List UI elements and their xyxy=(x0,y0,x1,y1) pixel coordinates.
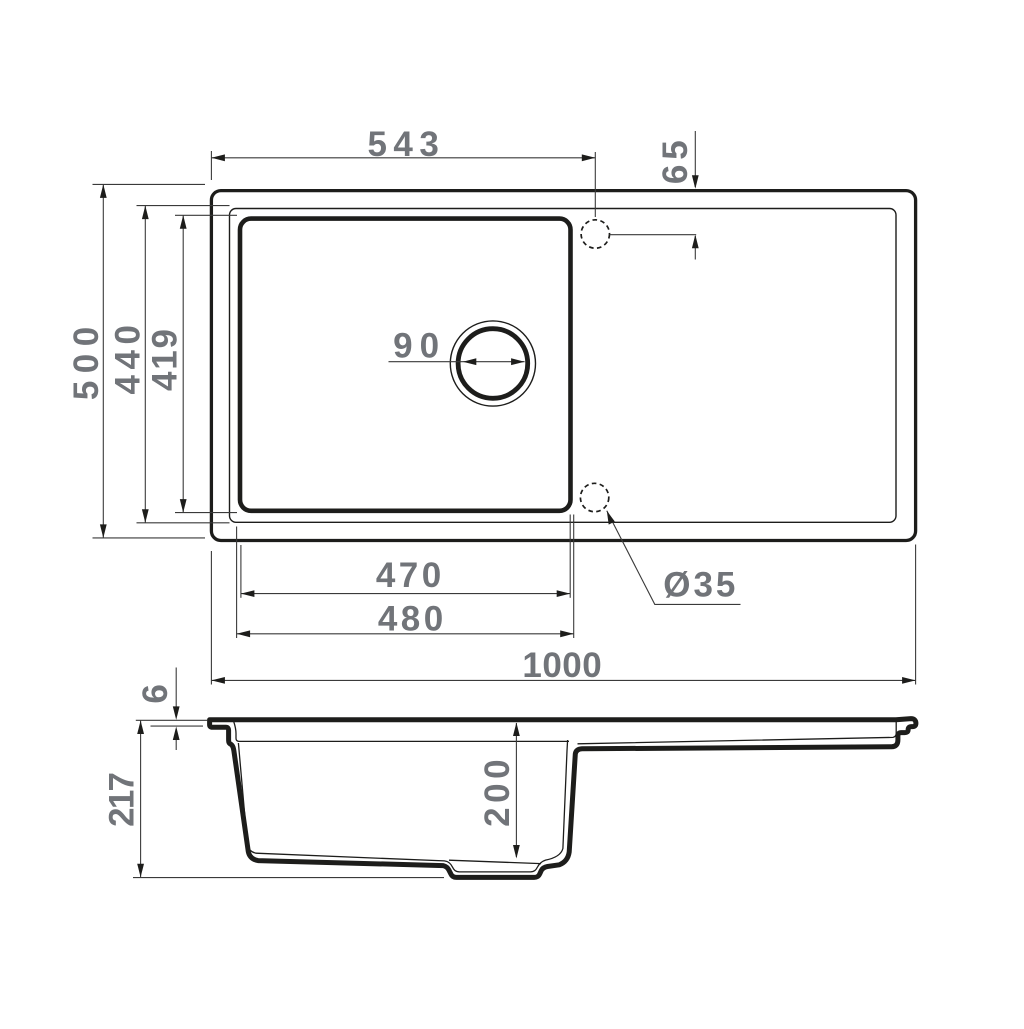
svg-text:480: 480 xyxy=(378,599,447,638)
svg-text:1000: 1000 xyxy=(522,646,602,685)
svg-text:500: 500 xyxy=(67,319,106,400)
svg-text:Ø35: Ø35 xyxy=(663,566,738,605)
svg-text:470: 470 xyxy=(376,556,445,595)
svg-text:543: 543 xyxy=(367,125,445,164)
svg-text:217: 217 xyxy=(103,773,142,826)
svg-text:6: 6 xyxy=(136,684,175,703)
svg-text:200: 200 xyxy=(478,755,517,827)
svg-text:440: 440 xyxy=(108,320,147,395)
svg-text:419: 419 xyxy=(146,327,185,391)
svg-text:65: 65 xyxy=(656,135,695,184)
svg-text:90: 90 xyxy=(393,327,446,366)
